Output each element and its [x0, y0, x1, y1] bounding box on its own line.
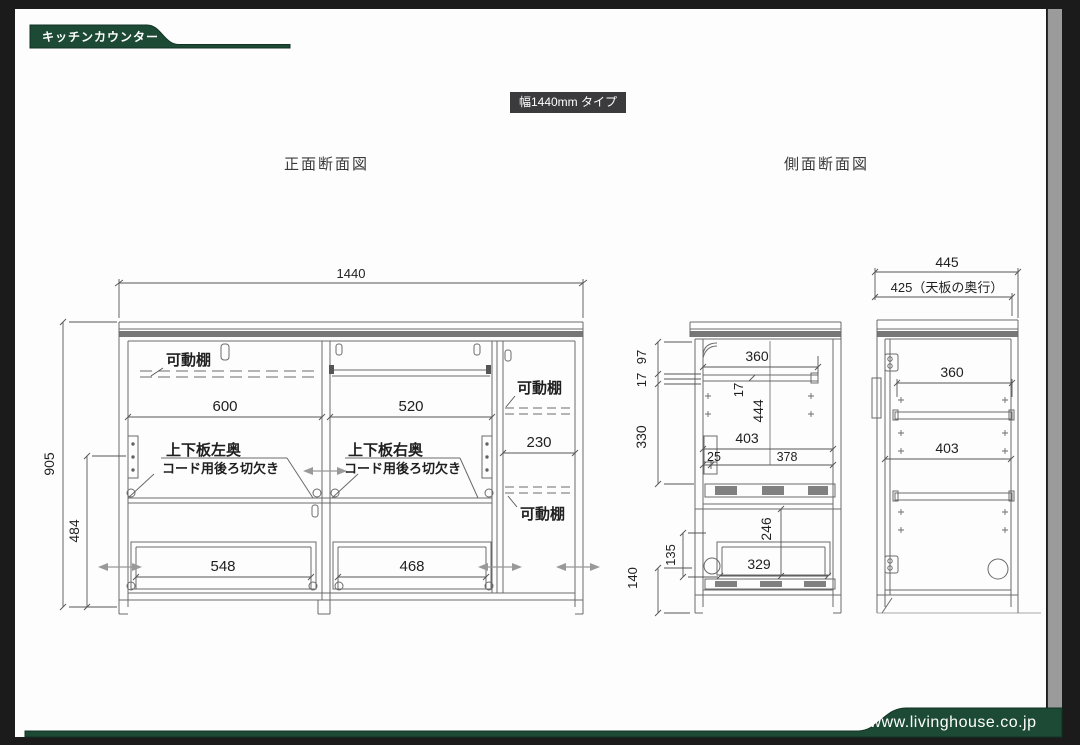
- right-view-texts: 445 425（天板の奥行） 360 403: [891, 254, 1004, 456]
- dim-center-bay: 520: [398, 398, 423, 415]
- front-dim-1440-lines: [115, 279, 587, 318]
- label-notch-left-sub: コード用後ろ切欠き: [162, 461, 279, 476]
- front-drawers: [131, 542, 491, 589]
- dim-425-top-depth: 425（天板の奥行）: [891, 280, 1004, 295]
- side-lower-rail: [705, 579, 835, 589]
- dim-25: 25: [707, 450, 721, 464]
- dim-403-right: 403: [935, 440, 959, 456]
- front-dim-484-lines: [84, 453, 126, 610]
- front-top-board-band: [119, 331, 583, 337]
- shelf-pin: [486, 365, 491, 374]
- dim-17-left: 17: [634, 373, 649, 387]
- dim-17-shelf: 17: [731, 383, 746, 397]
- side-cord-hole: [704, 558, 720, 574]
- side-upper-rail: [705, 484, 835, 497]
- side-drawer-inner: [722, 547, 825, 575]
- dim-left-bay: 600: [212, 398, 237, 415]
- front-dashed-shelves: [140, 371, 316, 377]
- dim-total-width: 1440: [337, 266, 366, 281]
- side-dim-140-lines: [655, 565, 692, 616]
- dim-360-side: 360: [745, 348, 769, 364]
- side-top-board-band: [690, 331, 841, 337]
- screenshot-root: キッチンカウンター 幅1440mm タイプ 正面断面図 側面断面図: [0, 0, 1080, 745]
- dim-right-bay: 230: [526, 434, 551, 451]
- label-notch-right-sub: コード用後ろ切欠き: [344, 461, 461, 476]
- footer-url: www.livinghouse.co.jp: [862, 709, 1044, 737]
- side-left-chain-lines: [655, 339, 701, 487]
- front-dim-905-lines: [60, 319, 117, 610]
- label-notch-left-title: 上下板左奥: [166, 441, 242, 459]
- dim-360-right: 360: [940, 364, 964, 380]
- front-hinge-circles: [127, 489, 493, 590]
- technical-drawing: 1440 905 484 600 520 230 548 468 可動棚 可動棚…: [0, 0, 1080, 745]
- dim-97: 97: [634, 350, 649, 364]
- dim-403-side: 403: [735, 430, 759, 446]
- dim-445: 445: [935, 254, 959, 270]
- dim-329: 329: [747, 556, 771, 572]
- dim-378: 378: [777, 450, 798, 464]
- label-notch-right-title: 上下板右奥: [348, 441, 424, 459]
- right-dim-360-lines: [894, 379, 1015, 397]
- dim-246: 246: [758, 517, 774, 541]
- dim-lower-height: 484: [66, 519, 82, 543]
- right-dim-425-lines: [872, 293, 1015, 316]
- dim-444: 444: [750, 399, 766, 423]
- dim-total-height: 905: [41, 452, 57, 476]
- right-hinges: [885, 354, 898, 573]
- side-corner-bracket: [703, 343, 717, 358]
- dim-330: 330: [633, 425, 649, 449]
- side-shelf: [703, 375, 818, 381]
- label-movable-shelf-top: 可動棚: [166, 351, 211, 369]
- label-movable-shelf-right-lower: 可動棚: [520, 505, 565, 523]
- right-top-board-band: [877, 331, 1018, 337]
- front-view-texts: 1440 905 484 600 520 230 548 468 可動棚 可動棚…: [41, 266, 565, 575]
- side-dim-17-tick: [749, 375, 755, 381]
- right-dim-403-lines: [882, 456, 1014, 462]
- dim-right-drawer: 468: [399, 558, 424, 575]
- side-dim-135-lines: [680, 530, 718, 580]
- dim-140: 140: [625, 567, 640, 589]
- label-movable-shelf-right-upper: 可動棚: [517, 379, 562, 397]
- front-center-shelf: [332, 370, 490, 376]
- side-dim-329-lines: [717, 573, 831, 579]
- right-cord-hole: [988, 559, 1008, 579]
- front-shelf-leaders: [151, 368, 517, 507]
- shelf-pin: [329, 365, 334, 374]
- dim-left-drawer: 548: [210, 558, 235, 575]
- dim-135: 135: [663, 544, 678, 566]
- right-pin-holes: [898, 397, 1008, 533]
